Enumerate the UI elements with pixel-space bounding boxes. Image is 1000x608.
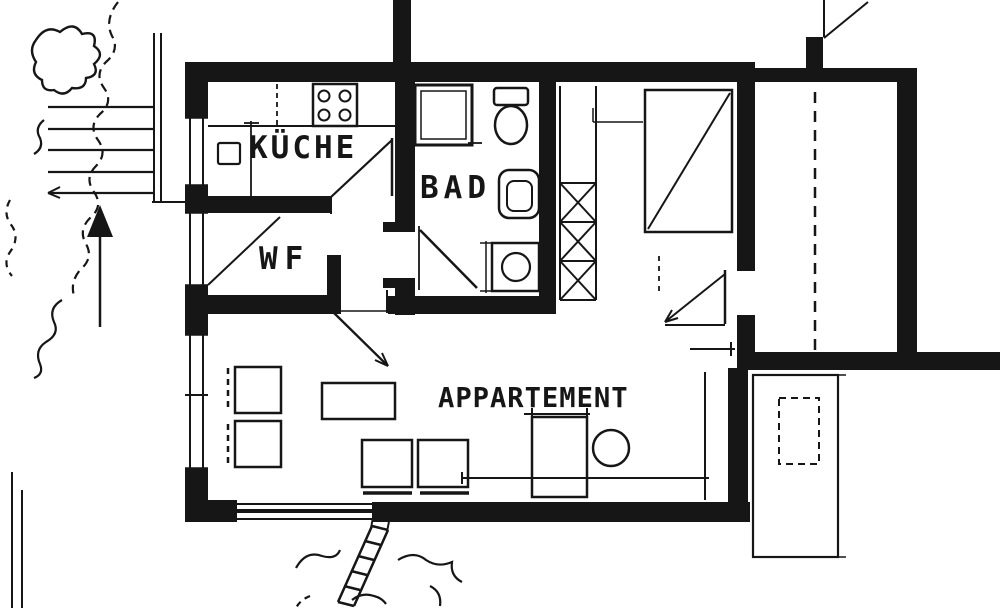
kitchen-sink-icon <box>218 143 240 164</box>
vestibule-window <box>185 213 208 285</box>
shower-icon <box>415 85 482 145</box>
wall <box>742 68 906 82</box>
room-label-bath: BAD <box>420 170 491 206</box>
ladder-icon <box>338 512 390 606</box>
wall <box>185 468 208 522</box>
living-window-west <box>185 335 208 468</box>
wall <box>395 80 415 222</box>
washing-machine-icon <box>480 241 539 293</box>
seat-square <box>235 421 281 467</box>
wall <box>208 500 237 522</box>
dining-table <box>524 408 590 497</box>
chimney <box>806 0 868 68</box>
plan-canvas <box>0 0 1000 608</box>
balcony-outline <box>753 375 846 557</box>
wall <box>737 352 1000 370</box>
bath-door <box>419 226 477 290</box>
wall <box>897 68 917 368</box>
living-furniture <box>228 342 735 500</box>
wall <box>185 62 208 118</box>
coffee-table <box>322 383 395 419</box>
wall <box>383 278 415 288</box>
wardrobe-icon <box>645 90 732 232</box>
stove-icon <box>313 84 357 126</box>
room-label-kitchen: KÜCHE <box>249 130 357 166</box>
round-stool <box>593 430 629 466</box>
wall <box>185 196 330 213</box>
dimension-lines <box>462 342 735 500</box>
windows <box>185 118 372 519</box>
north-arrow-icon <box>87 205 113 327</box>
room-label-vestibule: WF <box>259 241 310 277</box>
washbasin-icon <box>499 170 539 218</box>
wall <box>737 316 755 352</box>
living-window-south <box>237 504 372 519</box>
wall <box>539 80 556 314</box>
wall <box>327 255 341 314</box>
steps-lines <box>48 107 154 198</box>
wall <box>388 296 556 314</box>
room-label-apartment: APPARTEMENT <box>438 381 629 414</box>
wall <box>383 222 415 232</box>
wall <box>728 368 748 522</box>
wall <box>185 295 330 314</box>
seat-square <box>235 367 281 413</box>
toilet-icon <box>494 88 528 144</box>
wall <box>185 62 742 82</box>
kitchen-window <box>185 118 208 185</box>
chair-square <box>418 440 468 487</box>
wall <box>372 502 750 522</box>
hatched-shaft <box>560 86 643 300</box>
garden-path-lines <box>12 472 22 608</box>
floor-plan-page: KÜCHE BAD WF APPARTEMENT <box>0 0 1000 608</box>
chair-square <box>362 440 412 487</box>
wall <box>393 0 411 62</box>
wall <box>737 62 755 270</box>
